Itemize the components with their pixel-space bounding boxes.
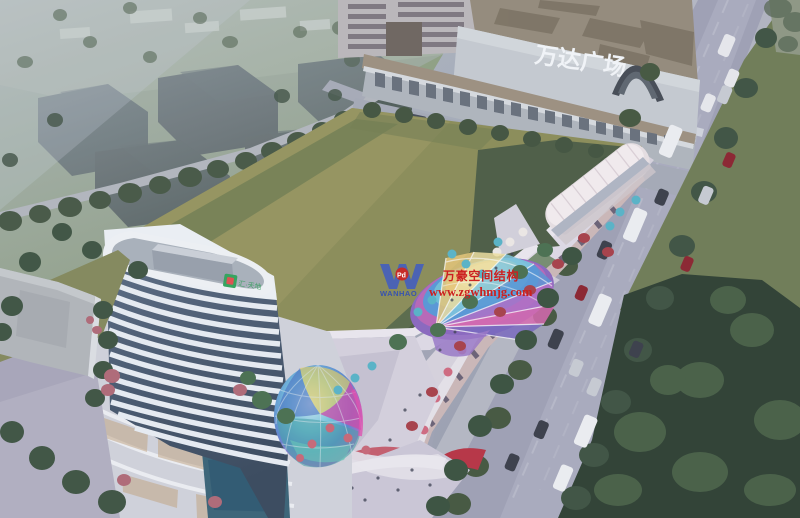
svg-text:WANHAO: WANHAO	[380, 289, 417, 298]
svg-text:www.zgwhmjg.com: www.zgwhmjg.com	[429, 285, 533, 299]
svg-text:万豪空间结构: 万豪空间结构	[442, 268, 519, 283]
svg-text:Pd: Pd	[397, 273, 406, 280]
